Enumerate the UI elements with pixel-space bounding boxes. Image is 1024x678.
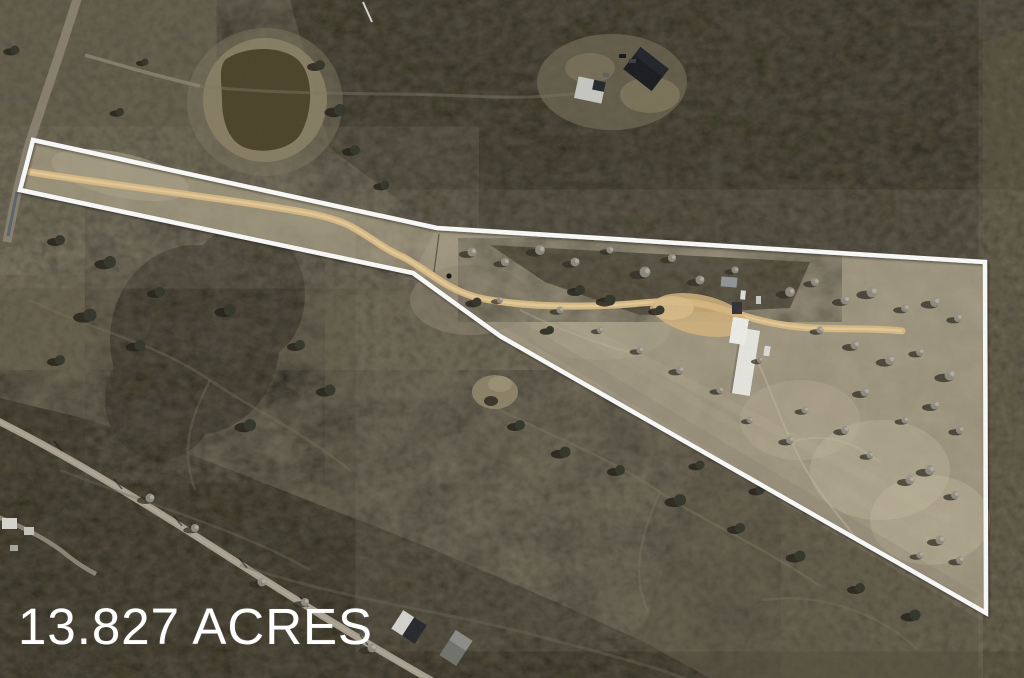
satellite-image [0,0,1024,678]
aerial-photo: 13.827 ACRES [0,0,1024,678]
photo-grain [0,0,1024,678]
acreage-label: 13.827 ACRES [18,601,373,652]
